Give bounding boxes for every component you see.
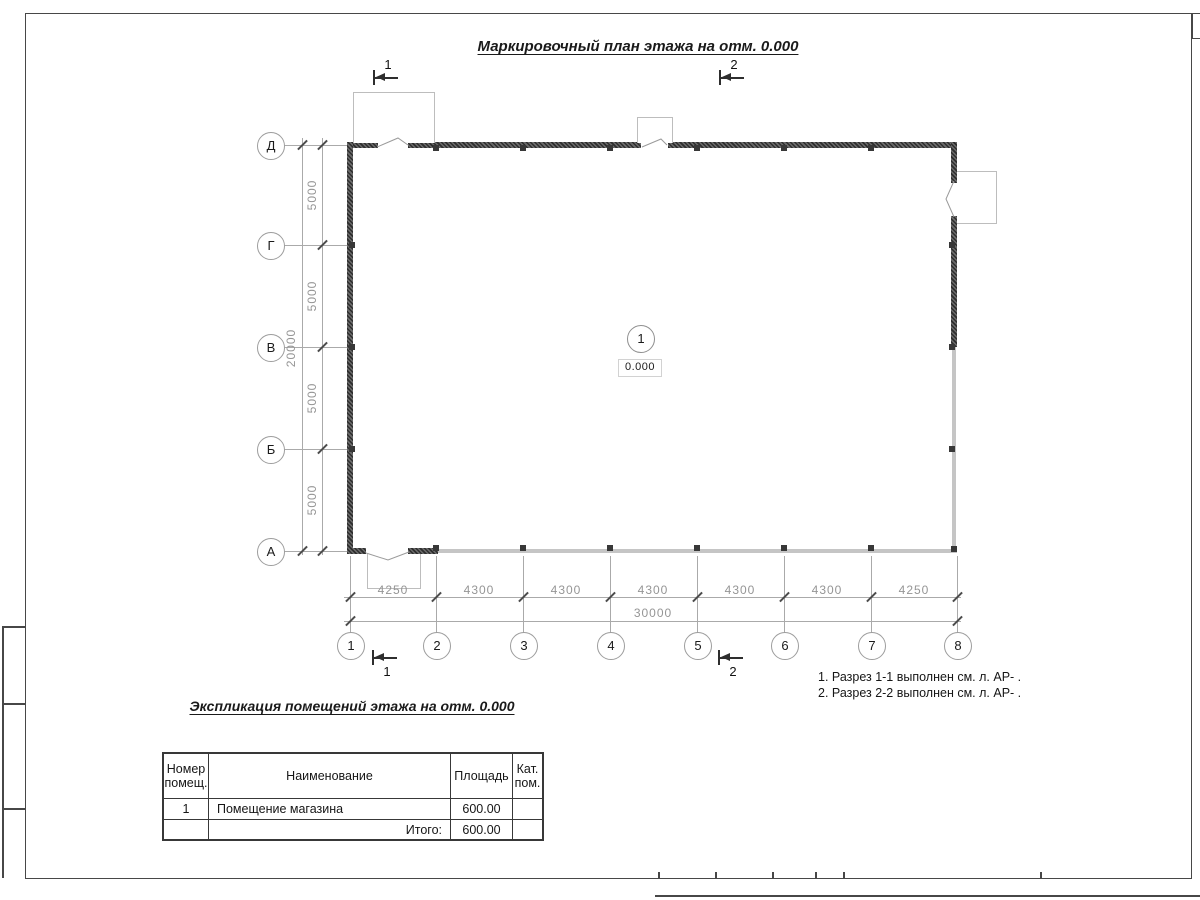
section-arrow-icon — [376, 73, 385, 81]
titleblock-stub — [772, 872, 774, 878]
room-number-bubble: 1 — [627, 325, 655, 353]
extension-line — [284, 245, 347, 246]
left-stamp-divider — [2, 808, 25, 810]
column-marker — [949, 242, 955, 248]
axis-bubble-8: 8 — [944, 632, 972, 660]
extension-line — [284, 449, 347, 450]
section-arrow-icon — [375, 653, 384, 661]
table-header-name: Наименование — [208, 754, 450, 798]
dim-label: 5000 — [305, 485, 319, 516]
extension-line — [284, 551, 347, 552]
section-label-bottom-1: 1 — [379, 664, 395, 679]
axis-bubble-2: 2 — [423, 632, 451, 660]
column-marker — [433, 145, 439, 151]
dim-label: 4300 — [638, 583, 669, 597]
column-marker — [607, 545, 613, 551]
column-marker — [694, 545, 700, 551]
titleblock-stub — [1040, 872, 1042, 878]
table-total-label: Итого: — [208, 819, 450, 839]
note-line-2: 2. Разрез 2-2 выполнен см. л. АР- . — [818, 685, 1021, 701]
axis-bubble-6: 6 — [771, 632, 799, 660]
dim-label: 4250 — [378, 583, 409, 597]
explication-table: Номер помещ. Наименование Площадь Кат. п… — [162, 752, 544, 841]
column-marker — [868, 545, 874, 551]
table-header-cat: Кат. пом. — [512, 754, 542, 798]
dimension-line-total — [344, 621, 961, 622]
table-cell-area: 600.00 — [450, 798, 512, 819]
dim-label: 5000 — [305, 281, 319, 312]
dim-label: 4300 — [464, 583, 495, 597]
extension-line — [284, 145, 347, 146]
axis-bubble-4: 4 — [597, 632, 625, 660]
left-stamp-divider — [2, 703, 25, 705]
page-title: Маркировочный план этажа на отм. 0.000 — [353, 38, 923, 55]
dim-label: 5000 — [305, 180, 319, 211]
titleblock-stub — [843, 872, 845, 878]
column-marker — [694, 145, 700, 151]
table-total-cat — [512, 819, 542, 839]
dim-label: 4300 — [812, 583, 843, 597]
column-marker — [781, 145, 787, 151]
dim-label: 4250 — [899, 583, 930, 597]
drawing-sheet: Маркировочный план этажа на отм. 0.000 1… — [0, 0, 1200, 900]
explication-title: Экспликация помещений этажа на отм. 0.00… — [162, 698, 542, 714]
titleblock-stub — [658, 872, 660, 878]
wall-bottom-segment — [347, 548, 366, 554]
table-cell-cat — [512, 798, 542, 819]
dim-total-label: 20000 — [284, 329, 298, 367]
dim-label: 4300 — [551, 583, 582, 597]
axis-bubble-d: Д — [257, 132, 285, 160]
axis-bubble-3: 3 — [510, 632, 538, 660]
section-arrow-icon — [721, 653, 730, 661]
door-leaf-icon — [943, 180, 955, 218]
column-marker — [949, 446, 955, 452]
note-line-1: 1. Разрез 1-1 выполнен см. л. АР- . — [818, 669, 1021, 685]
column-marker — [607, 145, 613, 151]
door-leaf-icon — [366, 551, 410, 562]
wall-top-segment — [668, 142, 957, 148]
axis-bubble-b: Б — [257, 436, 285, 464]
table-total-empty — [164, 819, 208, 839]
table-header-area: Площадь — [450, 754, 512, 798]
left-stamp-divider — [2, 626, 25, 628]
wall-right-segment — [951, 216, 957, 347]
axis-bubble-a: А — [257, 538, 285, 566]
titleblock-stub — [715, 872, 717, 878]
dimension-line-total — [302, 138, 303, 555]
column-marker — [781, 545, 787, 551]
dim-total-label: 30000 — [634, 606, 672, 620]
table-total-value: 600.00 — [450, 819, 512, 839]
column-marker — [520, 545, 526, 551]
dim-label: 5000 — [305, 383, 319, 414]
section-label-top-1: 1 — [380, 57, 396, 72]
table-cell-num: 1 — [164, 798, 208, 819]
axis-bubble-g: Г — [257, 232, 285, 260]
column-marker — [349, 446, 355, 452]
section-label-top-2: 2 — [726, 57, 742, 72]
dim-label: 4300 — [725, 583, 756, 597]
axis-bubble-v: В — [257, 334, 285, 362]
section-arrow-icon — [722, 73, 731, 81]
column-marker — [349, 242, 355, 248]
room-elevation-label: 0.000 — [618, 359, 662, 377]
column-marker — [520, 145, 526, 151]
column-marker — [433, 545, 439, 551]
table-cell-name: Помещение магазина — [208, 798, 450, 819]
door-leaf-icon — [377, 134, 409, 150]
corner-stamp-box — [1192, 13, 1200, 39]
column-marker — [349, 344, 355, 350]
axis-bubble-1: 1 — [337, 632, 365, 660]
titleblock-stub — [815, 872, 817, 878]
section-label-bottom-2: 2 — [725, 664, 741, 679]
titleblock-bottom-line — [655, 895, 1200, 897]
column-marker — [868, 145, 874, 151]
door-leaf-icon — [641, 136, 668, 148]
axis-bubble-5: 5 — [684, 632, 712, 660]
axis-bubble-7: 7 — [858, 632, 886, 660]
table-header-num: Номер помещ. — [164, 754, 208, 798]
left-stamp-line — [2, 626, 4, 878]
column-marker — [951, 546, 957, 552]
column-marker — [949, 344, 955, 350]
porch-right — [957, 171, 997, 224]
